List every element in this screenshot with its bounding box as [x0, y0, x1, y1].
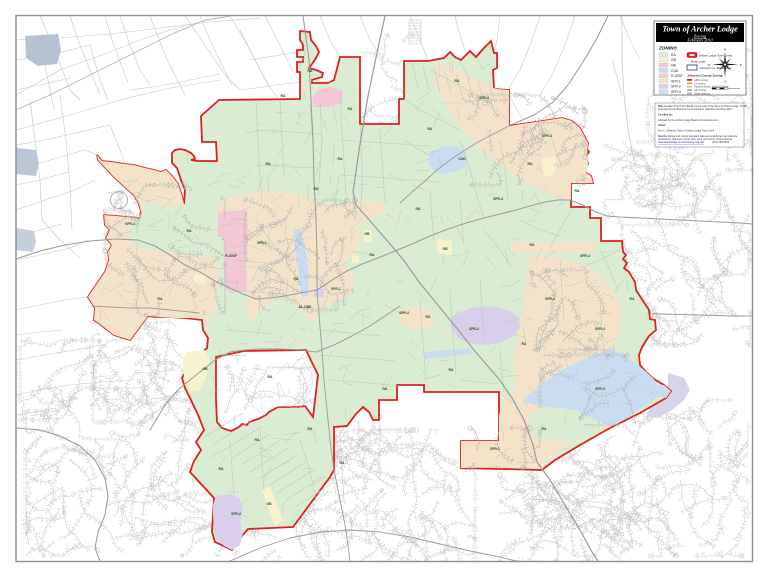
- svg-text:(919) 550-5545: (919) 550-5545: [712, 141, 730, 144]
- svg-text:RA: RA: [416, 207, 421, 211]
- svg-text:SFR-4: SFR-4: [595, 327, 605, 331]
- svg-text:GB: GB: [442, 247, 448, 251]
- svg-text:CUD: CUD: [671, 69, 679, 73]
- svg-text:ARR zoning: ARR zoning: [694, 78, 708, 82]
- svg-text:SFR-2: SFR-2: [231, 512, 241, 516]
- svg-text:AR zoning: AR zoning: [694, 88, 707, 92]
- svg-text:0 0.25 0.5 1 Miles: 0 0.25 0.5 1 Miles: [712, 86, 728, 88]
- svg-text:S: S: [724, 80, 726, 84]
- svg-text:RA: RA: [266, 162, 271, 166]
- svg-text:Road Lines: Road Lines: [691, 60, 706, 64]
- svg-text:SFR-2: SFR-2: [671, 85, 681, 89]
- svg-text:RA: RA: [542, 427, 547, 431]
- svg-text:RA: RA: [449, 368, 454, 372]
- svg-text:RA: RA: [426, 315, 431, 319]
- svg-text:SFR-1: SFR-1: [331, 287, 341, 291]
- svg-text:GB: GB: [202, 367, 208, 371]
- svg-text:SFR-1: SFR-1: [490, 447, 500, 451]
- svg-text:Other districts: Other districts: [694, 92, 711, 96]
- svg-text:RA: RA: [370, 253, 375, 257]
- svg-text:Certified by:: Certified by:: [658, 113, 673, 116]
- svg-text:amended by the Board of Commis: amended by the Board of Commissioners. E…: [658, 108, 733, 111]
- svg-text:RA: RA: [158, 297, 163, 301]
- svg-text:AL-CBD: AL-CBD: [299, 305, 313, 309]
- svg-text:SFR-1: SFR-1: [125, 222, 135, 226]
- svg-text:SFR-2: SFR-2: [469, 327, 479, 331]
- svg-text:SFR-4: SFR-4: [542, 134, 552, 138]
- svg-text:GB: GB: [671, 58, 677, 62]
- svg-text:Attest:: Attest:: [658, 124, 666, 127]
- svg-text:RA: RA: [281, 94, 286, 98]
- svg-text:SFR-4: SFR-4: [493, 197, 503, 201]
- svg-text:SFR-3: SFR-3: [671, 90, 681, 94]
- svg-text:RA: RA: [530, 243, 535, 247]
- svg-text:RA: RA: [348, 107, 353, 111]
- svg-text:www.archerlodge-nc.com/zoning-: www.archerlodge-nc.com/zoning-map Tel:: [658, 141, 705, 144]
- svg-text:RA: RA: [671, 53, 676, 57]
- svg-text:HB: HB: [671, 64, 676, 68]
- svg-text:CUD: CUD: [458, 157, 466, 161]
- svg-text:SFR-4: SFR-4: [545, 297, 555, 301]
- svg-text:RA: RA: [219, 467, 224, 471]
- svg-text:Ann C. Williams, Town of Arche: Ann C. Williams, Town of Archer Lodge To…: [658, 130, 715, 133]
- svg-text:R-20SF: R-20SF: [671, 74, 683, 78]
- svg-text:SFR-4: SFR-4: [479, 96, 489, 100]
- svg-text:Johnston County Zoning: Johnston County Zoning: [687, 74, 723, 78]
- svg-text:Archer Lodge Town Limits: Archer Lodge Town Limits: [699, 54, 733, 58]
- svg-text:RA: RA: [575, 189, 580, 193]
- svg-text:RA: RA: [522, 342, 527, 346]
- svg-text:RA: RA: [455, 79, 460, 83]
- svg-text:RA: RA: [294, 277, 299, 281]
- svg-text:E: E: [740, 63, 742, 67]
- svg-text:RA: RA: [255, 438, 260, 442]
- svg-text:RA: RA: [308, 427, 313, 431]
- svg-text:SFR-4: SFR-4: [580, 254, 590, 258]
- svg-text:RA: RA: [308, 69, 313, 73]
- svg-text:Town of Archer Lodge: Town of Archer Lodge: [662, 25, 738, 34]
- svg-text:SFR-1: SFR-1: [257, 241, 267, 245]
- svg-text:SFR-1: SFR-1: [671, 79, 681, 83]
- svg-text:SFR-4: SFR-4: [399, 311, 409, 315]
- svg-text:Rezone areas: Rezone areas: [694, 85, 711, 89]
- svg-text:RA: RA: [268, 375, 273, 379]
- svg-text:GB: GB: [266, 502, 272, 506]
- svg-text:RA: RA: [383, 387, 388, 391]
- svg-text:R-20SF: R-20SF: [225, 254, 237, 258]
- svg-text:Adopted by the Archer Lodge Bo: Adopted by the Archer Lodge Board of Com…: [658, 119, 719, 122]
- svg-text:I-2 zoning: I-2 zoning: [694, 81, 706, 85]
- svg-text:RA: RA: [528, 162, 533, 166]
- svg-text:RA: RA: [338, 157, 343, 161]
- svg-text:RA: RA: [340, 461, 345, 465]
- svg-text:RA: RA: [428, 127, 433, 131]
- svg-text:RA: RA: [630, 297, 635, 301]
- svg-text:RA: RA: [314, 187, 319, 191]
- svg-text:SFR-3: SFR-3: [595, 387, 605, 391]
- svg-text:ZONING: ZONING: [658, 46, 677, 51]
- svg-text:RA: RA: [187, 229, 192, 233]
- svg-text:GB: GB: [364, 232, 370, 236]
- svg-text:February 2010: February 2010: [686, 38, 713, 43]
